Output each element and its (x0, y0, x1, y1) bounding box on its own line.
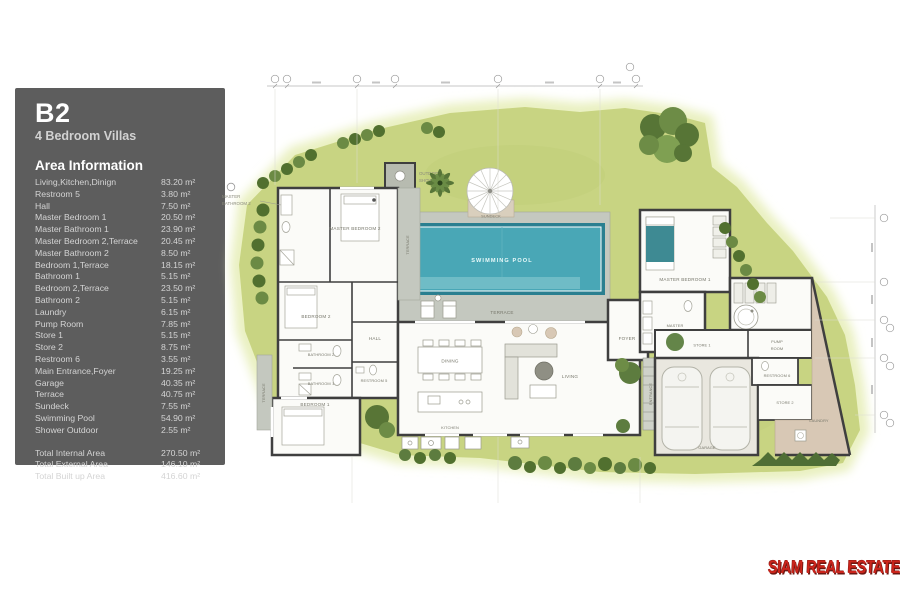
total-row-label: Total Internal Area (35, 448, 161, 460)
area-row: Bathroom 2 5.15 m² (35, 295, 213, 307)
area-row: Restroom 6 3.55 m² (35, 354, 213, 366)
total-row-label: Total External Area (35, 459, 161, 471)
kitchen-island-symbol (418, 392, 482, 412)
grass-shade (425, 145, 605, 205)
area-info-panel: B2 4 Bedroom Villas Area Information Liv… (15, 88, 225, 465)
area-row: Master Bedroom 1 20.50 m² (35, 212, 213, 224)
plant-icon (616, 419, 630, 433)
area-row: Pump Room 7.85 m² (35, 319, 213, 331)
pool-terrace: SWIMMING POOL TERRACE (390, 212, 610, 322)
area-row-value: 23.90 m² (161, 224, 213, 236)
area-row: Master Bedroom 2,Terrace 20.45 m² (35, 236, 213, 248)
area-row-label: Store 2 (35, 342, 161, 354)
toilet-symbol (762, 362, 769, 371)
area-row-value: 19.25 m² (161, 366, 213, 378)
area-row-value: 5.15 m² (161, 295, 213, 307)
area-row-label: Swimming Pool (35, 413, 161, 425)
sundeck: SUNDECK (467, 168, 514, 219)
area-row-label: Bedroom 2,Terrace (35, 283, 161, 295)
area-row-value: 20.50 m² (161, 212, 213, 224)
siam-real-estate-logo: SIAM REAL ESTATE (778, 549, 891, 587)
area-row-label: Sundeck (35, 401, 161, 413)
total-row-value: 146.10 m² (161, 459, 213, 471)
grid-bubble (227, 183, 235, 191)
area-row: Hall 7.50 m² (35, 201, 213, 213)
terrace-label: TERRACE (490, 310, 513, 315)
hall-label: HALL (369, 336, 382, 341)
car-symbol-2 (710, 367, 750, 450)
bathtub-symbol (734, 305, 758, 329)
washer-symbol (795, 430, 806, 441)
entrance-label: ENTRANCE (648, 383, 653, 406)
logo-text: SIAM REAL ESTATE (768, 558, 900, 578)
master-bedroom2-label: MASTER BEDROOM 2 (329, 226, 380, 231)
shower-head-icon (395, 171, 405, 181)
central-block: DINING KITCHEN (398, 321, 640, 449)
bathroom1-label: BATHROOM 1 (308, 381, 334, 386)
living-label: LIVING (562, 374, 578, 379)
bed-symbol-mb1 (646, 217, 674, 270)
area-row-label: Master Bedroom 1 (35, 212, 161, 224)
area-row-value: 7.85 m² (161, 319, 213, 331)
area-row-value: 8.75 m² (161, 342, 213, 354)
master-bathroom2-label-2: BATHROOM 2 (222, 201, 251, 206)
area-row-label: Bedroom 1,Terrace (35, 260, 161, 272)
foyer-label: FOYER (619, 336, 636, 341)
area-row-label: Terrace (35, 389, 161, 401)
area-row: Store 2 8.75 m² (35, 342, 213, 354)
master-bathroom1-label-1: MASTER (667, 323, 684, 328)
bed-symbol-bedroom1 (282, 407, 324, 445)
restroom5-label: RESTROOM 5 (361, 378, 388, 383)
area-row-value: 83.20 m² (161, 177, 213, 189)
area-row: Terrace 40.75 m² (35, 389, 213, 401)
area-row: Master Bathroom 1 23.90 m² (35, 224, 213, 236)
area-row-label: Hall (35, 201, 161, 213)
bedroom1-terrace-label: TERRACE (261, 383, 266, 403)
area-row-label: Living,Kitchen,Dinign (35, 177, 161, 189)
area-row-value: 7.50 m² (161, 201, 213, 213)
area-totals: Total Internal Area 270.50 m² Total Exte… (35, 448, 213, 483)
kitchen-label: KITCHEN (441, 425, 459, 430)
area-row-label: Master Bathroom 2 (35, 248, 161, 260)
area-row-value: 7.55 m² (161, 401, 213, 413)
area-row: Bedroom 2,Terrace 23.50 m² (35, 283, 213, 295)
pump-room-label-2: ROOM (771, 346, 784, 351)
area-row: Sundeck 7.55 m² (35, 401, 213, 413)
area-row: Shower Outdoor 2.55 m² (35, 425, 213, 437)
bed-symbol-bedroom2 (285, 286, 317, 328)
area-row-label: Store 1 (35, 330, 161, 342)
area-row: Master Bathroom 2 8.50 m² (35, 248, 213, 260)
area-row-label: Bathroom 1 (35, 271, 161, 283)
area-row-value: 23.50 m² (161, 283, 213, 295)
mb2-terrace-label: TERRACE (405, 235, 410, 255)
master-bathroom2-label-1: MASTER (222, 194, 240, 199)
area-row-value: 5.15 m² (161, 330, 213, 342)
area-row: Store 1 5.15 m² (35, 330, 213, 342)
total-row-value: 416.60 m² (161, 471, 213, 483)
area-row: Laundry 6.15 m² (35, 307, 213, 319)
area-row: Garage 40.35 m² (35, 378, 213, 390)
swimming-pool-label: SWIMMING POOL (471, 258, 533, 264)
central-walls (398, 322, 640, 435)
unit-subtitle: 4 Bedroom Villas (35, 129, 213, 143)
area-row-label: Restroom 6 (35, 354, 161, 366)
parasol-icon (467, 168, 513, 214)
area-row-value: 18.15 m² (161, 260, 213, 272)
area-information-heading: Area Information (35, 158, 213, 173)
area-row-value: 54.90 m² (161, 413, 213, 425)
area-row-label: Master Bedroom 2,Terrace (35, 236, 161, 248)
area-row-value: 40.75 m² (161, 389, 213, 401)
bathroom2-label: BATHROOM 2 (308, 352, 334, 357)
area-row-value: 5.15 m² (161, 271, 213, 283)
area-row: Bedroom 1,Terrace 18.15 m² (35, 260, 213, 272)
grid-bubbles-right (880, 214, 894, 427)
restroom6-walls (752, 358, 798, 385)
area-row-label: Main Entrance,Foyer (35, 366, 161, 378)
floor-plan: SWIMMING POOL TERRACE S (215, 55, 895, 525)
area-row-value: 2.55 m² (161, 425, 213, 437)
area-row: Swimming Pool 54.90 m² (35, 413, 213, 425)
bed-symbol-mb2 (341, 194, 379, 241)
floor-plan-svg: SWIMMING POOL TERRACE S (215, 55, 895, 525)
restroom6-label: RESTROOM 6 (764, 373, 791, 378)
area-row-label: Bathroom 2 (35, 295, 161, 307)
area-rows: Living,Kitchen,Dinign 83.20 m² Restroom … (35, 177, 213, 437)
store1-label: STORE 1 (693, 343, 710, 348)
area-row-label: Laundry (35, 307, 161, 319)
dim-text-marks-right (871, 243, 873, 394)
area-row-label: Pump Room (35, 319, 161, 331)
page: B2 4 Bedroom Villas Area Information Liv… (0, 0, 900, 599)
area-row: Restroom 5 3.80 m² (35, 189, 213, 201)
bedroom2-label: BEDROOM 2 (301, 314, 331, 319)
area-row-value: 3.80 m² (161, 189, 213, 201)
laundry-label: LAUNDRY (809, 418, 829, 423)
area-row-value: 6.15 m² (161, 307, 213, 319)
area-row-value: 20.45 m² (161, 236, 213, 248)
total-row: Total Built up Area 416.60 m² (35, 471, 213, 483)
area-row-label: Garage (35, 378, 161, 390)
pump-room-label-1: PUMP (771, 339, 783, 344)
car-symbol-1 (662, 367, 702, 450)
area-row-label: Restroom 5 (35, 189, 161, 201)
area-row-value: 40.35 m² (161, 378, 213, 390)
unit-title: B2 (35, 98, 213, 128)
area-row-label: Shower Outdoor (35, 425, 161, 437)
area-row: Living,Kitchen,Dinign 83.20 m² (35, 177, 213, 189)
master-bedroom1-label: MASTER BEDROOM 1 (659, 277, 710, 282)
area-row-value: 3.55 m² (161, 354, 213, 366)
grid-bubbles-top (271, 63, 640, 83)
area-row-value: 8.50 m² (161, 248, 213, 260)
dining-label: DINING (441, 359, 459, 364)
store2-label: STORE 2 (776, 400, 793, 405)
pool-step (420, 277, 580, 289)
area-row: Bathroom 1 5.15 m² (35, 271, 213, 283)
total-row-value: 270.50 m² (161, 448, 213, 460)
bedroom1-label: BEDROOM 1 (300, 402, 330, 407)
area-row-label: Master Bathroom 1 (35, 224, 161, 236)
area-row: Main Entrance,Foyer 19.25 m² (35, 366, 213, 378)
total-row: Total Internal Area 270.50 m² (35, 448, 213, 460)
total-row-label: Total Built up Area (35, 471, 161, 483)
palm-tree-icon (426, 169, 454, 197)
total-row: Total External Area 146.10 m² (35, 459, 213, 471)
garage-label: GARAGE (698, 445, 716, 450)
